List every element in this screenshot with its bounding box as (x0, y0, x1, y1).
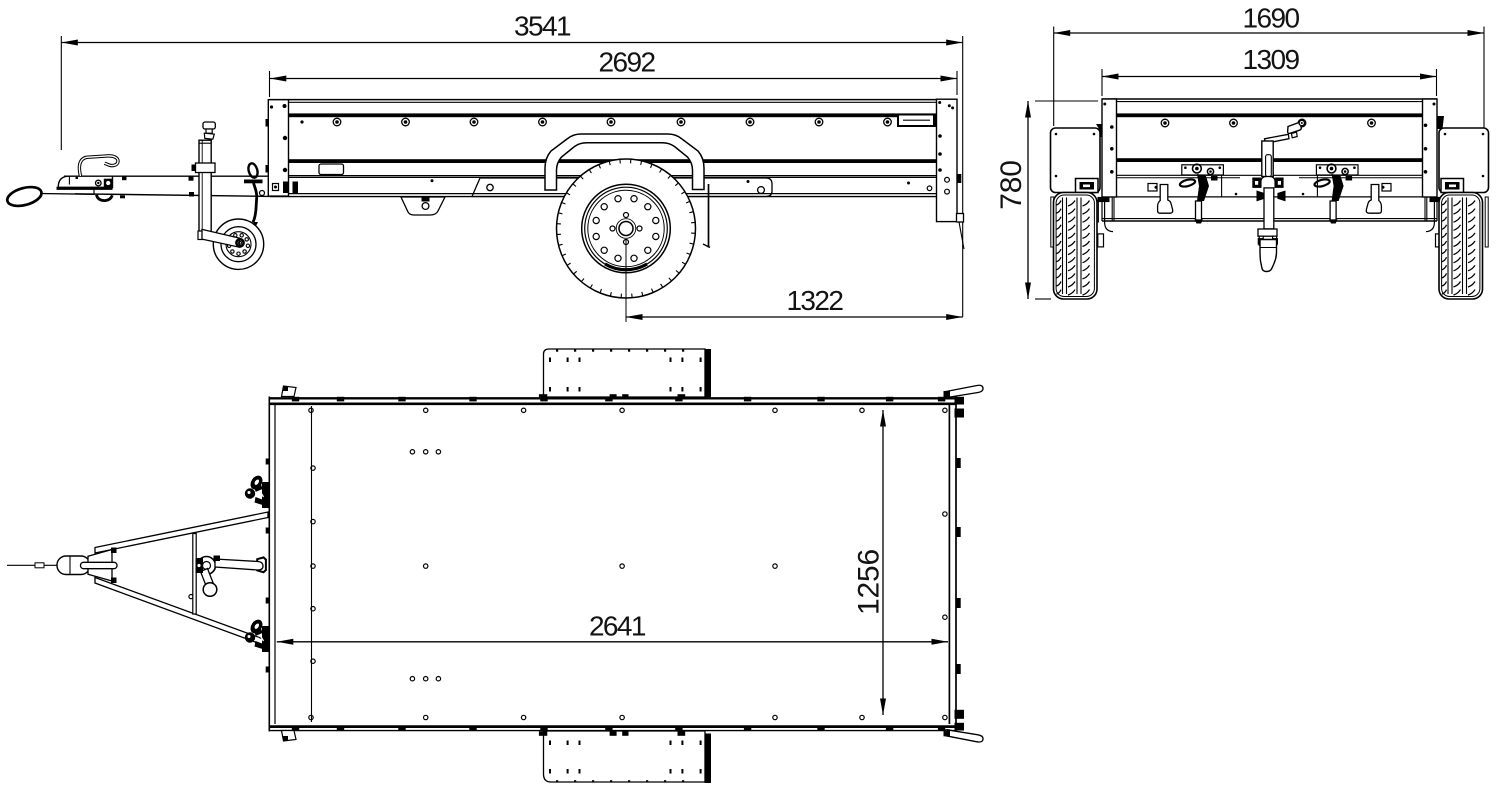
svg-text:2692: 2692 (599, 47, 656, 78)
svg-text:1690: 1690 (1243, 3, 1300, 34)
svg-text:1256: 1256 (853, 549, 886, 615)
svg-text:1309: 1309 (1243, 44, 1300, 75)
svg-text:2641: 2641 (589, 611, 646, 642)
svg-text:1322: 1322 (786, 285, 843, 316)
svg-text:780: 780 (995, 160, 1028, 209)
svg-text:3541: 3541 (514, 11, 571, 42)
